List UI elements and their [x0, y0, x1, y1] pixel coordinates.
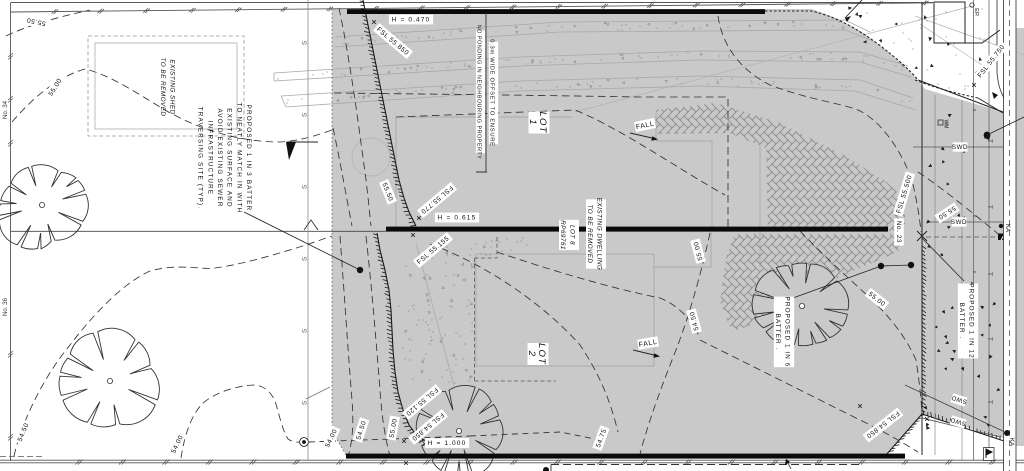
- svg-text:H = 0.615: H = 0.615: [438, 215, 477, 222]
- svg-text:WM: WM: [942, 120, 948, 129]
- svg-text:S: S: [302, 328, 309, 333]
- svg-text:T: T: [986, 400, 992, 404]
- svg-text:H = 0.470: H = 0.470: [392, 17, 431, 24]
- svg-text:0.3m WIDE OFFSET TO ENSURE: 0.3m WIDE OFFSET TO ENSURE: [489, 39, 495, 146]
- svg-text:TO NEATLY MATCH IN WITH: TO NEATLY MATCH IN WITH: [235, 103, 242, 214]
- svg-text:RP69761: RP69761: [559, 220, 566, 250]
- svg-text:SWD: SWD: [952, 144, 968, 151]
- svg-text:S: S: [302, 184, 309, 189]
- svg-text:T: T: [986, 272, 992, 276]
- svg-text:EP: EP: [973, 8, 979, 16]
- svg-text:SWD: SWD: [951, 219, 967, 226]
- svg-text:INFRASTRUCTURE: INFRASTRUCTURE: [206, 121, 213, 196]
- svg-text:No. 34: No. 34: [2, 100, 9, 119]
- svg-text:e: e: [971, 271, 977, 274]
- svg-text:T: T: [986, 139, 992, 143]
- svg-text:S: S: [302, 112, 309, 117]
- svg-text:LOT 8: LOT 8: [569, 225, 576, 245]
- svg-text:PROPOSED 1 IN 6: PROPOSED 1 IN 6: [784, 297, 791, 368]
- svg-text:No. 23: No. 23: [895, 221, 902, 243]
- svg-text:T: T: [986, 337, 992, 341]
- svg-text:T: T: [986, 205, 992, 209]
- svg-text:TO BE REMOVED: TO BE REMOVED: [159, 58, 166, 117]
- svg-text:NO PONDING IN NEIGHBOURING PRO: NO PONDING IN NEIGHBOURING PROPERTY: [476, 25, 482, 160]
- svg-text:e: e: [971, 215, 977, 218]
- svg-text:BATTER .: BATTER .: [958, 303, 965, 340]
- svg-text:BATTER .: BATTER .: [774, 314, 781, 351]
- svg-text:H = 1.000: H = 1.000: [428, 440, 467, 447]
- svg-text:KA: KA: [1004, 224, 1010, 232]
- svg-text:S: S: [302, 40, 309, 45]
- svg-text:AVOID EXISTING SEWER: AVOID EXISTING SEWER: [216, 108, 223, 207]
- svg-text:TO BE REMOVED: TO BE REMOVED: [586, 205, 593, 264]
- svg-text:1: 1: [527, 119, 538, 125]
- svg-text:S: S: [302, 400, 309, 405]
- svg-text:PROPOSED 1 IN 3 BATTER: PROPOSED 1 IN 3 BATTER: [245, 105, 252, 212]
- svg-text:PROPOSED 1 IN 12: PROPOSED 1 IN 12: [968, 283, 975, 358]
- svg-text:TRAVERSING SITE (TYP).: TRAVERSING SITE (TYP).: [197, 107, 204, 210]
- svg-text:EXISTING DWELLING: EXISTING DWELLING: [596, 198, 603, 271]
- svg-text:EXISTING SHED: EXISTING SHED: [169, 59, 176, 114]
- svg-text:KA: KA: [1008, 438, 1014, 446]
- svg-text:S: S: [302, 256, 309, 261]
- svg-text:EXISTING SURFACE AND: EXISTING SURFACE AND: [226, 108, 233, 208]
- svg-text:e: e: [971, 109, 977, 112]
- svg-text:2: 2: [526, 350, 537, 357]
- svg-text:No. 36: No. 36: [2, 297, 9, 316]
